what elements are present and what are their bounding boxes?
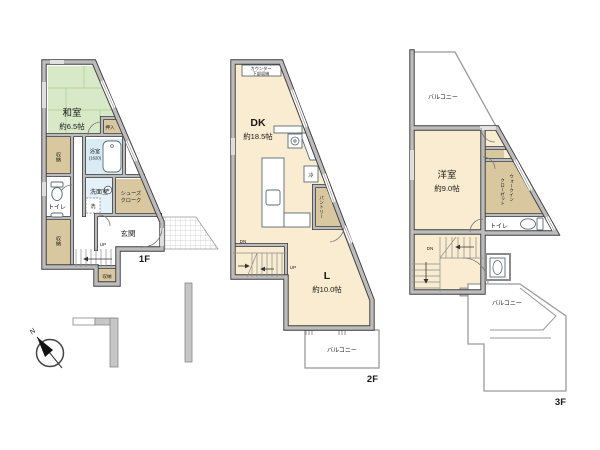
label-wic-2: クローゼット (500, 178, 506, 206)
site-walls (73, 283, 192, 367)
label-toilet-1f: トイレ (48, 205, 66, 211)
label-up-1f: UP (100, 242, 106, 247)
floor-label-1f: 1F (139, 254, 150, 265)
basin-nook (486, 254, 510, 280)
entrance-porch (163, 217, 218, 249)
label-wic-1: ウォークイン (509, 173, 515, 202)
label-balcony-bottom-3f: バルコニー (492, 300, 522, 307)
floor-3f: バルコニー 洋室 約9.0帖 ウォークイン クローゼット トイレ DN バルコニ… (412, 52, 566, 408)
label-bath-size: (1620) (89, 156, 102, 161)
label-genkan: 玄関 (121, 228, 136, 238)
f2-floor-base (233, 62, 372, 328)
label-counter-2: 下部収納 (253, 70, 270, 77)
label-shoes-2: クローク (121, 197, 142, 204)
label-oshiire: 押入 (105, 124, 115, 131)
label-washitsu-size: 約6.5帖 (59, 121, 85, 131)
label-balcony-top-3f: バルコニー (428, 94, 458, 101)
label-living: L (324, 270, 331, 282)
floor-label-2f: 2F (367, 374, 378, 385)
label-yoshitsu-size: 約9.0帖 (434, 183, 460, 193)
label-balcony-2f: バルコニー (327, 347, 357, 354)
label-dk: DK (250, 117, 266, 129)
stove-icon (288, 134, 302, 148)
label-storage-bottom-left: 収納 (55, 235, 61, 247)
compass-north-label: N (29, 327, 38, 336)
label-yoshitsu: 洋室 (437, 169, 456, 181)
label-up-2f: UP (290, 265, 296, 270)
label-toilet-3f: トイレ (490, 224, 508, 230)
label-fridge: 冷 (308, 171, 313, 179)
label-washer: 洗 (90, 202, 96, 210)
floor-2f: カウンター 下部収納 DK 約18.5帖 冷 パントリー DN UP L 約10… (233, 62, 379, 385)
floorplan-canvas: 和室 約6.5帖 押入 収納 浴室 (1620) 洗面室 洗 トイレ シューズ … (0, 0, 600, 450)
floor-1f: 和室 約6.5帖 押入 収納 浴室 (1620) 洗面室 洗 トイレ シューズ … (44, 62, 218, 284)
label-storage-left: 収納 (55, 151, 61, 163)
label-dn-2f: DN (240, 239, 247, 244)
toilet-icon-3f (521, 218, 544, 230)
label-shoes-1: シューズ (121, 189, 142, 197)
compass-icon: N (29, 327, 64, 368)
f3-balcony-top (412, 52, 497, 128)
label-bath: 浴室 (90, 147, 100, 155)
floorplan-svg: 和室 約6.5帖 押入 収納 浴室 (1620) 洗面室 洗 トイレ シューズ … (0, 0, 600, 450)
bathtub-icon (103, 141, 121, 172)
label-washitsu: 和室 (62, 107, 81, 119)
label-washroom: 洗面室 (90, 188, 108, 196)
label-pantry: パントリー (319, 196, 325, 219)
label-storage-bottom: 収納 (102, 273, 112, 280)
floor-label-3f: 3F (555, 397, 566, 408)
label-living-size: 約10.0帖 (312, 284, 342, 294)
label-dn-3f: DN (427, 246, 434, 251)
label-dk-size: 約18.5帖 (243, 131, 273, 141)
